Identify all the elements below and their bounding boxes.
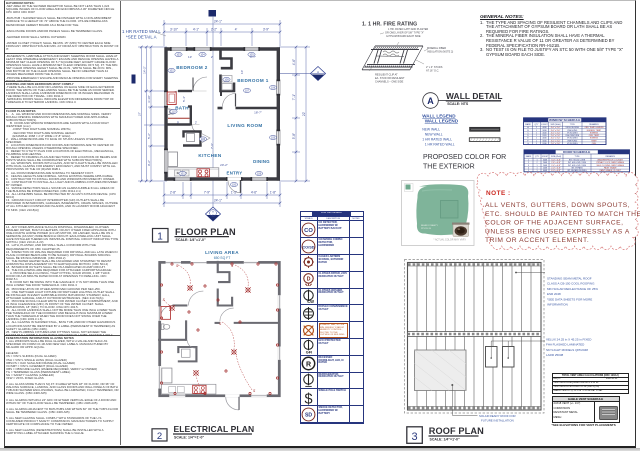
svg-text:NOTE :: NOTE : (486, 190, 511, 197)
svg-text:ETC. SHOULD BE PAINTED TO MATC: ETC. SHOULD BE PAINTED TO MATCH THE (485, 211, 640, 218)
svg-text:ALL VENTS, GUTTERS, DOWN SPOUT: ALL VENTS, GUTTERS, DOWN SPOUTS, (485, 202, 630, 209)
svg-text:TRIM OR ACCENT ELEMENT.: TRIM OR ACCENT ELEMENT. (485, 237, 589, 244)
svg-text:COLOR OF THE ADJACENT SURFACE,: COLOR OF THE ADJACENT SURFACE, (485, 220, 624, 227)
svg-text:UNLESS BEING USED EXPRESSLY AS: UNLESS BEING USED EXPRESSLY AS A (485, 228, 630, 235)
